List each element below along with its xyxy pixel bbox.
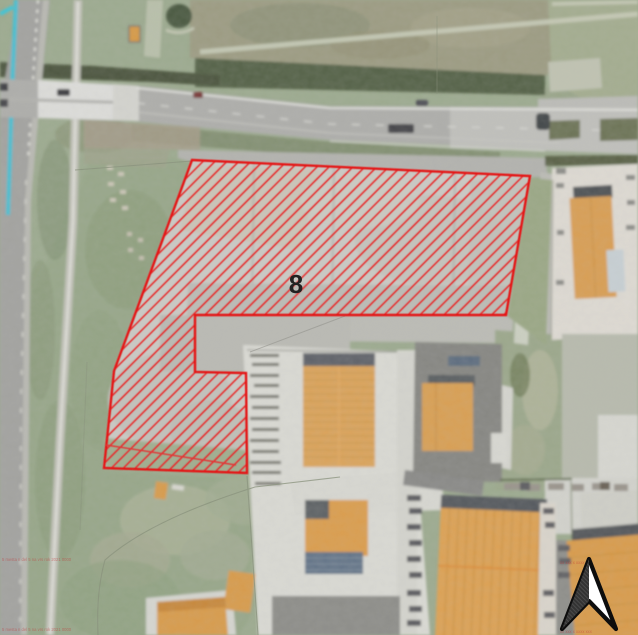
svg-text:8: 8 bbox=[289, 269, 303, 299]
svg-text:xx xxx x xxxx xxx: xx xxx x xxxx xxx bbox=[560, 629, 593, 634]
svg-text:5 mesta n del 5 na vrs rok 202: 5 mesta n del 5 na vrs rok 2021 0000 bbox=[2, 627, 72, 632]
svg-text:5 mesta n del 5 na vrs rok 202: 5 mesta n del 5 na vrs rok 2021 0000 bbox=[2, 557, 72, 562]
